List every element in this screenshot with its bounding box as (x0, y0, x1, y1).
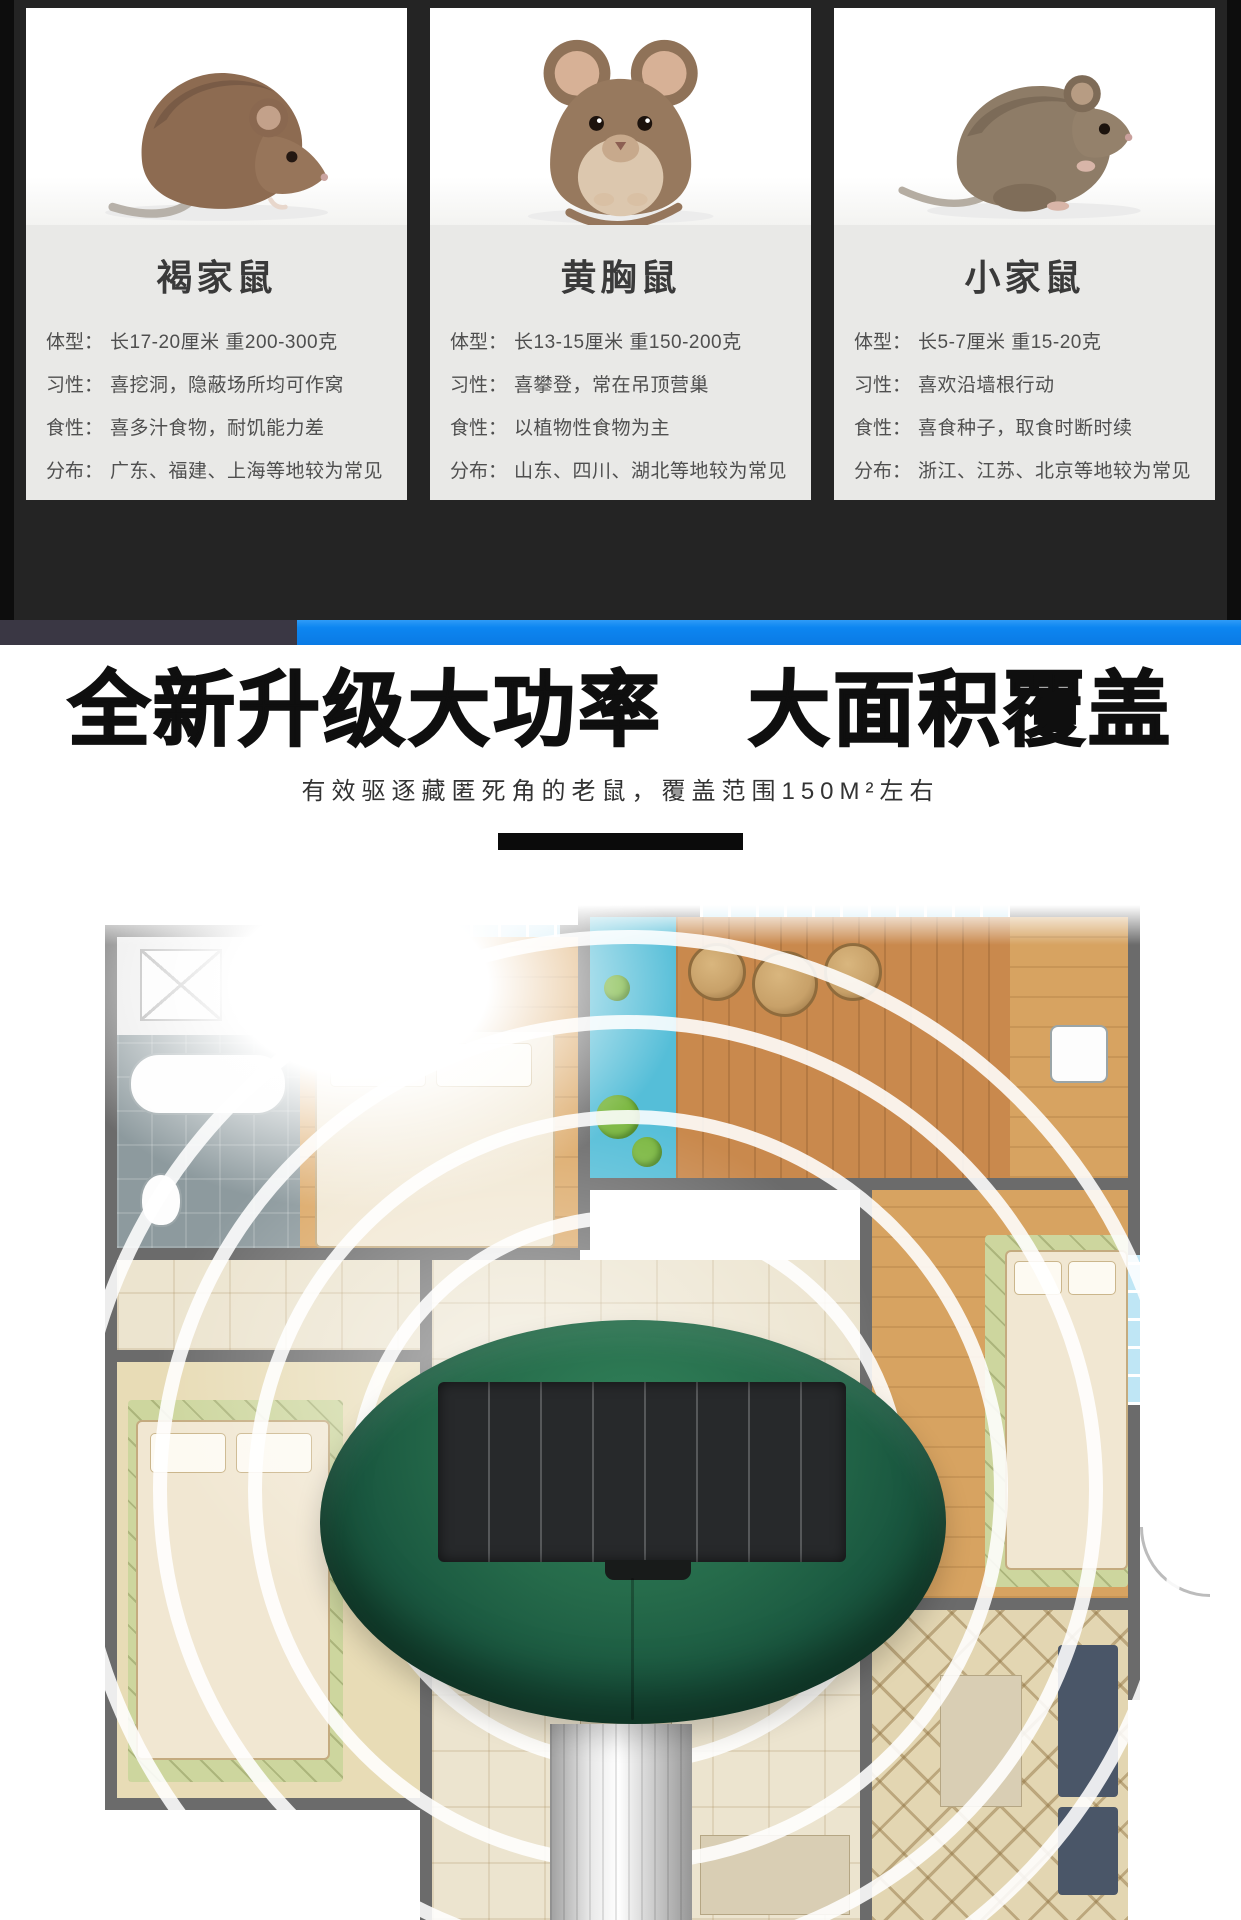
divider-bar (498, 833, 743, 850)
spec-value: 喜挖洞，隐蔽场所均可作窝 (110, 364, 387, 407)
promo-subtitle: 有效驱逐藏匿死角的老鼠，覆盖范围150M²左右 (0, 771, 1241, 806)
rodent-photo (26, 8, 407, 225)
rodent-photo (430, 8, 811, 225)
spec-value: 长13-15厘米 重150-200克 (514, 321, 791, 364)
accent-stripe-dark (0, 620, 297, 645)
spec-row: 习性：喜挖洞，隐蔽场所均可作窝 (46, 364, 387, 407)
rodent-card: 黄胸鼠 体型：长13-15厘米 重150-200克 习性：喜攀登，常在吊顶营巢 … (430, 8, 811, 500)
rodent-card-info: 褐家鼠 体型：长17-20厘米 重200-300克 习性：喜挖洞，隐蔽场所均可作… (26, 225, 407, 500)
rodent-card: 褐家鼠 体型：长17-20厘米 重200-300克 习性：喜挖洞，隐蔽场所均可作… (26, 8, 407, 500)
window (700, 905, 1010, 917)
rodent-card: 小家鼠 体型：长5-7厘米 重15-20克 习性：喜欢沿墙根行动 食性：喜食种子… (834, 8, 1215, 500)
brown-rat-photo (49, 25, 384, 225)
spec-row: 分布：浙江、江苏、北京等地较为常见 (854, 450, 1195, 493)
cap-seam (631, 1578, 634, 1720)
spec-value: 喜食种子，取食时断时续 (918, 407, 1195, 450)
spec-value: 山东、四川、湖北等地较为常见 (514, 450, 791, 493)
yellow-breasted-rat-photo (453, 25, 788, 225)
spec-row: 分布：广东、福建、上海等地较为常见 (46, 450, 387, 493)
spec-label: 体型： (46, 321, 110, 364)
spec-row: 习性：喜攀登，常在吊顶营巢 (450, 364, 791, 407)
spec-label: 食性： (450, 407, 514, 450)
spec-value: 长17-20厘米 重200-300克 (110, 321, 387, 364)
coverage-section (0, 905, 1241, 1920)
rodent-name: 小家鼠 (854, 249, 1195, 301)
spec-label: 习性： (46, 364, 110, 407)
spec-label: 分布： (854, 450, 918, 493)
left-edge-shade (0, 0, 14, 620)
spec-value: 以植物性食物为主 (514, 407, 791, 450)
right-edge-shade (1227, 0, 1241, 620)
spec-label: 体型： (854, 321, 918, 364)
spec-label: 分布： (46, 450, 110, 493)
spec-value: 喜欢沿墙根行动 (918, 364, 1195, 407)
spec-row: 食性：以植物性食物为主 (450, 407, 791, 450)
spec-row: 体型：长17-20厘米 重200-300克 (46, 321, 387, 364)
spec-row: 体型：长5-7厘米 重15-20克 (854, 321, 1195, 364)
spec-value: 喜攀登，常在吊顶营巢 (514, 364, 791, 407)
spec-label: 分布： (450, 450, 514, 493)
accent-stripe-blue (297, 620, 1241, 645)
device-ground-stake (550, 1724, 692, 1920)
spec-label: 体型： (450, 321, 514, 364)
spec-label: 习性： (854, 364, 918, 407)
spec-label: 习性： (450, 364, 514, 407)
rodent-cards-row: 褐家鼠 体型：长17-20厘米 重200-300克 习性：喜挖洞，隐蔽场所均可作… (26, 8, 1215, 500)
spec-row: 体型：长13-15厘米 重150-200克 (450, 321, 791, 364)
window (330, 925, 560, 937)
panel-notch (605, 1560, 691, 1580)
product-detail-page: 褐家鼠 体型：长17-20厘米 重200-300克 习性：喜挖洞，隐蔽场所均可作… (0, 0, 1241, 1920)
spec-value: 喜多汁食物，耐饥能力差 (110, 407, 387, 450)
spec-label: 食性： (46, 407, 110, 450)
spec-row: 分布：山东、四川、湖北等地较为常见 (450, 450, 791, 493)
spec-row: 习性：喜欢沿墙根行动 (854, 364, 1195, 407)
stake-ribs (550, 1724, 692, 1920)
rodent-name: 黄胸鼠 (450, 249, 791, 301)
rodent-info-section: 褐家鼠 体型：长17-20厘米 重200-300克 习性：喜挖洞，隐蔽场所均可作… (0, 0, 1241, 620)
solar-panel (438, 1382, 846, 1562)
promo-section: 全新升级大功率 大面积覆盖 有效驱逐藏匿死角的老鼠，覆盖范围150M²左右 (0, 645, 1241, 905)
sink (1050, 1025, 1108, 1083)
spec-row: 食性：喜食种子，取食时断时续 (854, 407, 1195, 450)
spec-label: 食性： (854, 407, 918, 450)
rodent-name: 褐家鼠 (46, 249, 387, 301)
accent-stripe (0, 620, 1241, 645)
spec-value: 广东、福建、上海等地较为常见 (110, 450, 387, 493)
rodent-card-info: 小家鼠 体型：长5-7厘米 重15-20克 习性：喜欢沿墙根行动 食性：喜食种子… (834, 225, 1215, 500)
washing-machine (140, 949, 222, 1021)
rodent-card-info: 黄胸鼠 体型：长13-15厘米 重150-200克 习性：喜攀登，常在吊顶营巢 … (430, 225, 811, 500)
spec-value: 浙江、江苏、北京等地较为常见 (918, 450, 1195, 493)
house-mouse-photo (857, 25, 1192, 225)
spec-value: 长5-7厘米 重15-20克 (918, 321, 1195, 364)
promo-headline: 全新升级大功率 大面积覆盖 (0, 645, 1241, 763)
spec-row: 食性：喜多汁食物，耐饥能力差 (46, 407, 387, 450)
repeller-device (320, 1320, 946, 1724)
rodent-photo (834, 8, 1215, 225)
